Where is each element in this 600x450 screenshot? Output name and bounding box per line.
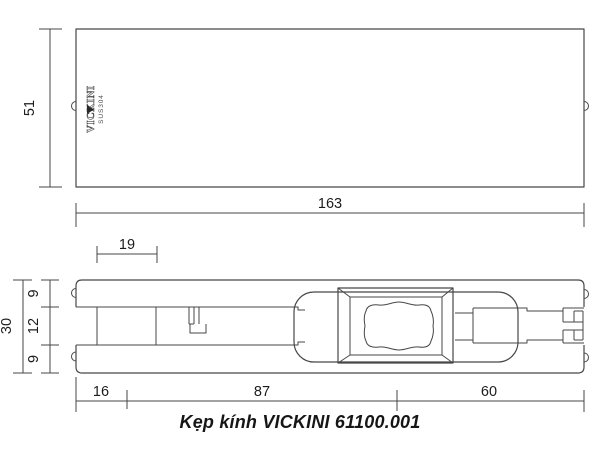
side-connector-and-slot — [97, 307, 206, 345]
dim-label-87: 87 — [254, 384, 270, 400]
dimension-thickness-stack: 9 12 9 — [26, 280, 59, 373]
dim-label-16: 16 — [93, 384, 109, 400]
logo-material-text: SUS304 — [98, 94, 105, 124]
dim-label-12: 12 — [26, 318, 42, 334]
side-boss-bevels — [338, 288, 453, 363]
dim-label-51: 51 — [22, 100, 38, 116]
dimension-top-height: 51 — [22, 29, 62, 187]
top-view-outline — [76, 29, 584, 187]
dim-label-30: 30 — [0, 318, 15, 334]
dim-line-51 — [39, 29, 62, 187]
side-top-plate — [76, 280, 584, 307]
side-right-arm — [455, 308, 584, 343]
side-cover-capsule — [294, 292, 518, 362]
dimension-bottom-segments: 16 87 60 — [76, 377, 584, 412]
dim-label-9-top: 9 — [26, 289, 42, 297]
side-cam-hole — [364, 302, 433, 350]
dim-line-16-87-60 — [76, 377, 584, 412]
vickini-logo: VICKINI SUS304 — [86, 85, 105, 132]
drawing-title: Kẹp kính VICKINI 61100.001 — [0, 412, 600, 433]
dim-label-9-bottom: 9 — [26, 355, 42, 363]
dim-line-9-12-9 — [41, 280, 59, 373]
dim-label-60: 60 — [481, 384, 497, 400]
drawing-sheet: VICKINI SUS304 51 163 — [0, 0, 600, 450]
dimension-tab: 19 — [97, 237, 157, 263]
top-view: VICKINI SUS304 — [72, 29, 589, 187]
side-boss-outer — [338, 288, 453, 363]
dim-label-19: 19 — [119, 237, 135, 253]
side-pin-bumps — [72, 289, 589, 363]
dimension-top-width: 163 — [76, 196, 584, 227]
technical-drawing: VICKINI SUS304 51 163 — [0, 0, 600, 450]
top-view-pin-bumps — [72, 102, 589, 111]
side-view — [72, 280, 589, 373]
side-screw-slots — [563, 308, 583, 343]
dim-label-163: 163 — [318, 196, 342, 212]
